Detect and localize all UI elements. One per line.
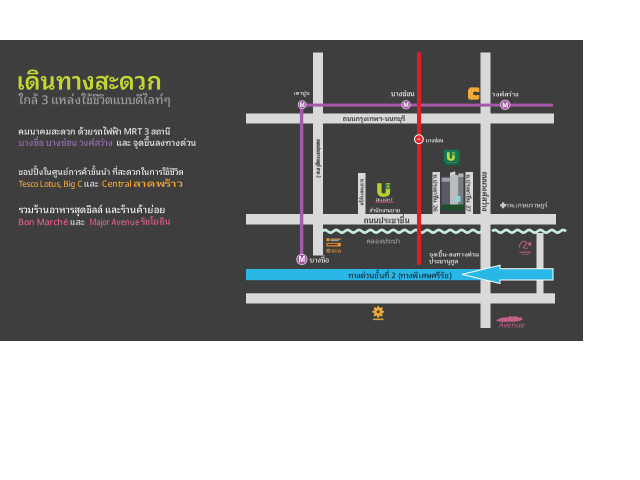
- svg-text:M: M: [403, 102, 408, 109]
- svg-text:M: M: [299, 255, 306, 264]
- svg-text:SCG: SCG: [331, 249, 342, 255]
- svg-text:M: M: [300, 103, 305, 109]
- svg-text:M: M: [502, 102, 508, 109]
